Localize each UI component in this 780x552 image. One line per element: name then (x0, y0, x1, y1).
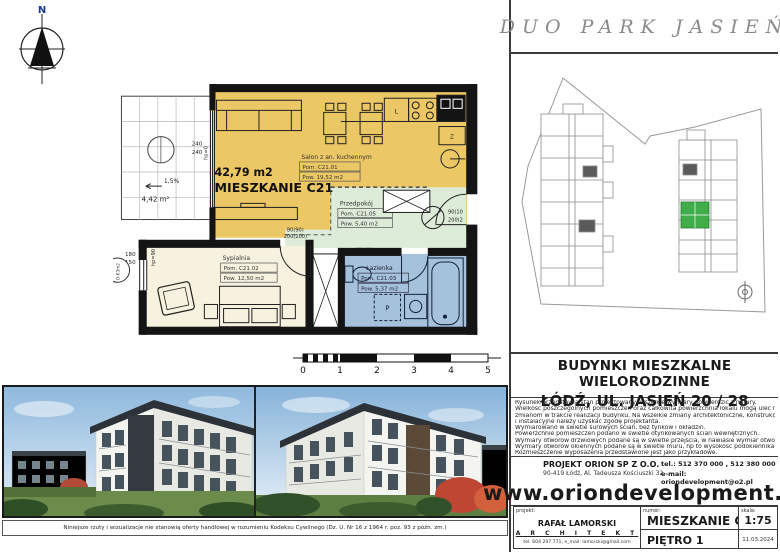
door-entry-w: 90(10 (448, 209, 463, 215)
scale-bar: 0 1 2 3 4 5 (293, 349, 501, 377)
architect-name: RAFAŁ LAMORSKI (514, 519, 640, 528)
scale-tick-3: 3 (411, 366, 417, 376)
compass-needle-icon (30, 27, 54, 66)
balcony-slope: 1,5% (164, 178, 180, 185)
door-bedroom-w: 80(90) (287, 228, 304, 234)
bedroom-name: Sypialnia (223, 255, 251, 262)
hall-id: Pom. C21.05 (341, 212, 377, 218)
washer-label: P (385, 304, 390, 313)
site-compass-icon (738, 281, 752, 303)
title-table: projekt: RAFAŁ LAMORSKI A R C H I T E K … (511, 506, 778, 550)
window-symbol: O-03m2 (115, 263, 120, 280)
balcony-hp: hp=0 (203, 146, 209, 160)
floor-cell: PIĘTRO 1 (640, 529, 739, 549)
bath-name: Łazienka (365, 265, 393, 272)
corridor-closet (313, 254, 339, 329)
site-plan (511, 54, 778, 352)
bath-area: Pow. 5,37 m2 (361, 286, 398, 292)
balcony-area: 4,42 m² (142, 194, 170, 203)
legal-disclaimer: Niniejsze rzuty i wizualizacje nie stano… (2, 520, 508, 536)
scale-tick-4: 4 (448, 366, 454, 376)
hall-wardrobe (383, 190, 430, 212)
bath-id: Pom. C21.03 (361, 276, 397, 282)
door-bedroom-h: 200(200) (284, 234, 307, 240)
hall-name: Przedpokój (340, 199, 373, 207)
scale-tick-1: 1 (337, 366, 343, 376)
notes-box: Rysunek przedstawia stan projektowany, w… (515, 400, 775, 454)
apartment-name: MIESZKANIE C21 (214, 180, 333, 195)
hall-area: Pow. 5,40 m2 (341, 222, 378, 228)
floor-value: PIĘTRO 1 (647, 534, 703, 547)
meter-label: Z (450, 135, 454, 141)
apartment-area: 42,79 m2 (214, 166, 272, 179)
scale-value: 1:75 (739, 514, 777, 527)
salon-name: Salon z an. kuchennym (301, 154, 371, 161)
building-photo-right (254, 387, 506, 516)
window-hp: hp=90 (151, 249, 157, 266)
numer-cell: numer: MIESZKANIE C21 (640, 506, 739, 530)
scale-tick-0: 0 (300, 366, 306, 376)
building-title-line1: BUDYNKI MIESZKALNE WIELORODZINNE (511, 358, 778, 390)
project-title: DUO PARK JASIEŃ (500, 16, 780, 38)
balcony-dim-2: 240 (192, 150, 203, 156)
architect-cell: projekt: RAFAŁ LAMORSKI A R C H I T E K … (513, 506, 641, 549)
drawing-title-box: BUDYNKI MIESZKALNE WIELORODZINNE ŁÓDŹ, U… (511, 352, 778, 398)
website-box: www.oriondevelopment.pl (511, 480, 778, 506)
architect-title: A R C H I T E K T (514, 530, 640, 537)
north-compass: N (16, 2, 68, 88)
fridge-label: L (395, 107, 399, 115)
company-name: PROJEKT ORION SP Z O.O. (543, 460, 659, 469)
company-box: PROJEKT ORION SP Z O.O. 90-419 Łódź, Al.… (511, 456, 778, 480)
date-value: 11.03.2024 (739, 537, 777, 543)
door-entry-h: 200(2 (448, 218, 463, 224)
balcony-dim-1: 240 (192, 142, 203, 148)
window-dim-w: 180 (125, 252, 136, 258)
balcony: 240 240 1,5% 4,42 m² (121, 96, 210, 219)
title-panel: DUO PARK JASIEŃ (509, 0, 778, 552)
building-photo-left (4, 387, 254, 516)
skala-cell: skala: 1:75 (738, 506, 778, 530)
visualization-photos (2, 385, 508, 518)
projekt-label: projekt: (516, 508, 535, 514)
site-building-left (541, 104, 613, 286)
project-title-box: DUO PARK JASIEŃ (511, 2, 778, 54)
architect-contact: tel. 604 207 771, e_mail: lamorski@gmail… (514, 540, 640, 545)
salon-id: Pom. C21.01 (302, 165, 338, 171)
company-tel: tel.: 512 370 000 , 512 380 000 (661, 460, 776, 468)
floor-plan: 240 240 1,5% 4,42 m² L Z (113, 78, 503, 353)
bedroom-id: Pom. C21.02 (224, 266, 259, 272)
company-address: 90-419 Łódź, Al. Tadeusza Kościuszki 32 (543, 470, 663, 477)
date-cell: 11.03.2024 (738, 529, 778, 549)
bedroom-area: Pow. 12,50 m2 (224, 276, 265, 282)
site-building-right (679, 130, 737, 272)
scale-tick-5: 5 (485, 366, 491, 376)
website-url: www.oriondevelopment.pl (483, 481, 780, 505)
scale-tick-2: 2 (374, 366, 380, 376)
drawing-sheet: N 240 240 1,5% 4,42 m² (0, 0, 780, 552)
legal-disclaimer-text: Niniejsze rzuty i wizualizacje nie stano… (63, 525, 446, 531)
